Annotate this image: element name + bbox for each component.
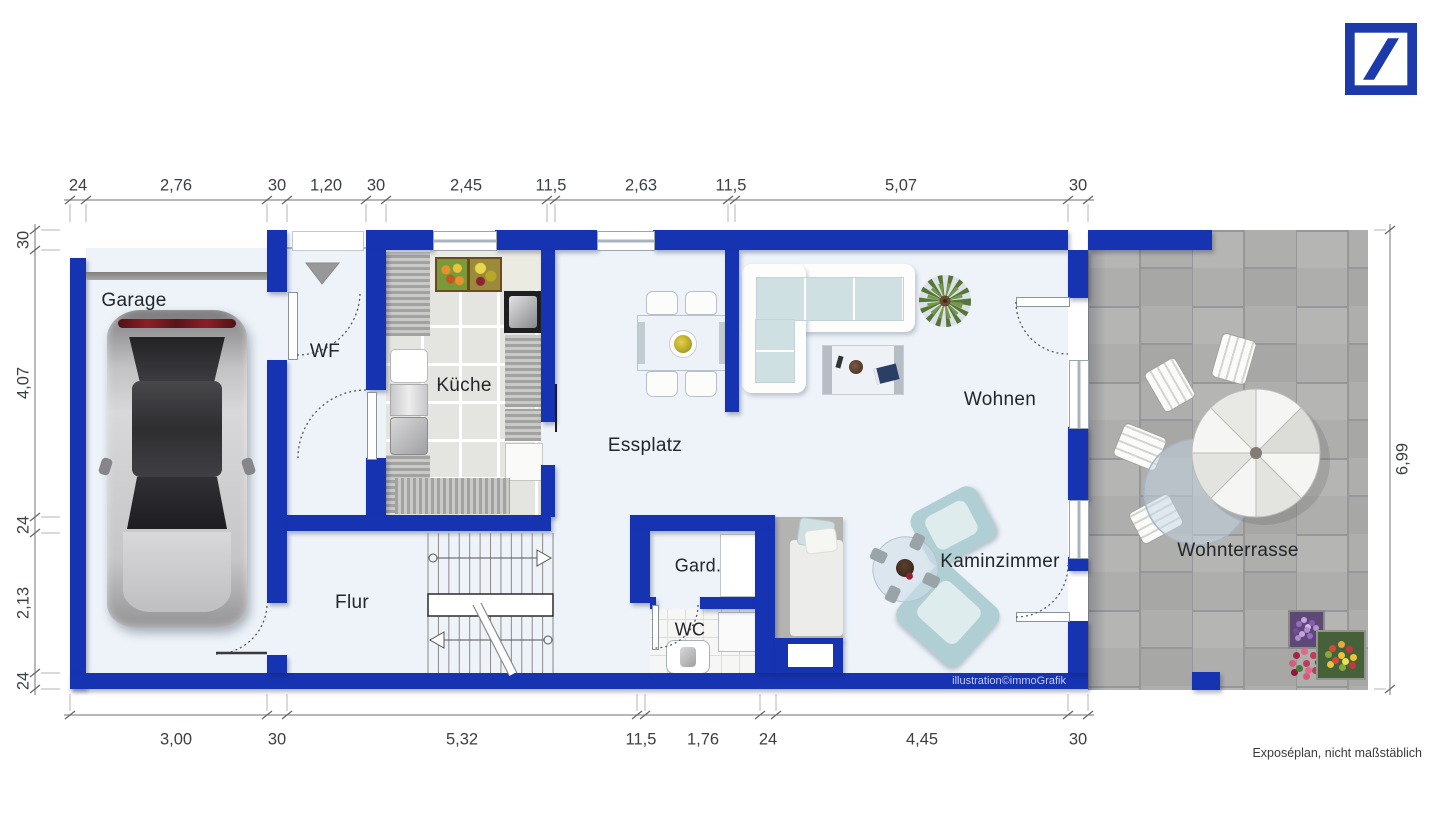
illustration-credit: illustration©immoGrafik <box>866 675 1066 687</box>
dim-bottom: 3,00 <box>160 731 192 750</box>
fruit-crate-1 <box>435 257 469 292</box>
dim-top: 5,07 <box>885 177 917 196</box>
kitchen-cutting-board <box>390 349 428 383</box>
wall-top-terrace <box>1088 230 1212 250</box>
dining-chair <box>646 291 678 315</box>
dim-bottom: 11,5 <box>626 731 657 750</box>
dim-top: 30 <box>268 177 286 196</box>
table-rail-left <box>638 322 645 364</box>
dim-top: 1,20 <box>310 177 342 196</box>
wall-right-seg3 <box>1068 557 1088 571</box>
bowl <box>849 360 863 374</box>
flower-dots <box>1304 627 1310 633</box>
dining-table <box>637 315 727 371</box>
dim-top: 2,45 <box>450 177 482 196</box>
room-label-kueche: Küche <box>436 375 491 397</box>
flower-planter-mixed <box>1316 630 1366 680</box>
dim-bottom: 5,32 <box>446 731 478 750</box>
kitchen-dishwasher <box>390 384 428 416</box>
wall-right-seg4 <box>1068 621 1088 673</box>
wall-wf-kueche-seg1 <box>366 250 386 390</box>
dining-chair <box>685 371 717 397</box>
kitchen-counter-left-top <box>386 252 430 336</box>
plan-disclaimer: Exposéplan, nicht maßstäblich <box>1160 746 1422 760</box>
window-wohnen <box>1069 360 1089 429</box>
dim-bottom: 1,76 <box>687 731 719 750</box>
doorframe-marker <box>555 384 557 432</box>
door-leaf-kamin-terrace <box>1016 612 1070 622</box>
car-windshield <box>127 477 227 529</box>
dim-bottom: 30 <box>268 731 286 750</box>
deutsche-bank-logo-icon <box>1345 23 1417 95</box>
room-label-essplatz: Essplatz <box>608 435 682 457</box>
floorplan-canvas: Garage WF Küche Essplatz Wohnen Kaminzim… <box>0 0 1440 815</box>
car-roof <box>132 381 222 477</box>
wall-top-kueche-left <box>366 230 433 250</box>
dim-left: 2,13 <box>15 587 34 619</box>
wall-wc-right <box>755 531 775 673</box>
sofa-cushions-top <box>756 277 904 321</box>
car-hood <box>123 532 231 612</box>
dim-left: 4,07 <box>15 367 34 399</box>
kitchen-stove <box>504 291 542 333</box>
daybed-mattress <box>790 540 843 636</box>
window-kueche <box>433 231 497 251</box>
wall-left-outer <box>70 258 86 689</box>
room-label-garage: Garage <box>101 290 166 312</box>
dim-bottom: 4,45 <box>906 731 938 750</box>
kitchen-cabinet-white <box>505 443 543 481</box>
kitchen-counter-right-mid <box>505 335 541 407</box>
wall-gard-wc <box>700 597 755 609</box>
wall-right-seg1 <box>1068 250 1088 298</box>
dim-bottom: 24 <box>759 731 777 750</box>
window-essplatz <box>597 231 655 251</box>
wall-right-seg2 <box>1068 427 1088 500</box>
kitchen-counter-right-low <box>505 409 541 441</box>
room-label-flur: Flur <box>335 592 369 614</box>
wall-stairs-north <box>287 515 551 531</box>
dim-left: 24 <box>15 516 34 534</box>
dim-top: 11,5 <box>536 177 567 196</box>
door-leaf-wf <box>367 392 377 460</box>
dim-right: 6,99 <box>1394 443 1413 475</box>
dim-left: 24 <box>15 672 34 690</box>
door-leaf-garage-wf <box>288 292 298 360</box>
dim-top: 11,5 <box>716 177 747 196</box>
room-label-wc: WC <box>675 620 706 641</box>
stove-cooktop <box>509 296 537 328</box>
wall-gard-left <box>630 531 650 603</box>
door-leaf-wc <box>652 605 659 650</box>
room-label-gard: Gard. <box>675 556 722 577</box>
toilet <box>666 640 710 674</box>
wardrobe <box>720 534 758 597</box>
coffee-table <box>822 345 904 395</box>
dim-top: 2,76 <box>160 177 192 196</box>
wall-terrace-stub <box>1192 672 1220 690</box>
dining-chair <box>685 291 717 315</box>
wall-wf-kueche-seg2 <box>366 458 386 517</box>
terrace-wall-shadow <box>1088 230 1106 690</box>
room-label-kaminzimmer: Kaminzimmer <box>940 551 1059 573</box>
pillow-white <box>804 527 839 555</box>
dim-top: 24 <box>69 177 87 196</box>
garage-door <box>86 272 267 280</box>
kitchen-sink <box>390 417 428 455</box>
sofa-cushions-left <box>755 319 795 383</box>
kitchen-counter-bottom <box>395 478 510 514</box>
room-label-wf: WF <box>310 341 340 363</box>
fruit-crate-2 <box>468 257 502 292</box>
fruit-bowl <box>674 335 692 353</box>
dim-top: 30 <box>367 177 385 196</box>
wall-kueche-right-seg2 <box>541 465 555 517</box>
wall-kueche-right-seg1 <box>541 250 555 422</box>
dim-top: 2,63 <box>625 177 657 196</box>
entry-door-opening <box>292 231 364 251</box>
fruit-plate <box>669 330 697 358</box>
dim-bottom: 30 <box>1069 731 1087 750</box>
wall-garage-seg2 <box>267 360 287 603</box>
dim-top: 30 <box>1069 177 1087 196</box>
wall-top-right <box>653 230 1068 250</box>
dining-chair <box>646 371 678 397</box>
wall-top-mid <box>495 230 597 250</box>
dim-left: 30 <box>15 231 34 249</box>
wall-garage-seg1 <box>267 230 287 292</box>
wall-gard-top <box>630 515 775 531</box>
daybed <box>775 517 843 641</box>
flower-dots <box>1303 660 1310 667</box>
window-kaminzimmer <box>1069 500 1089 559</box>
car-taillight-strip <box>118 319 236 328</box>
remote <box>835 356 843 369</box>
wc-sink <box>718 612 758 652</box>
coffee-table-cap-left <box>823 346 832 394</box>
car-top-view <box>107 310 247 628</box>
wall-essplatz-wohnen <box>725 250 739 412</box>
flower-dots <box>1338 652 1345 659</box>
room-label-wohnen: Wohnen <box>964 389 1036 411</box>
toilet-lid <box>680 647 696 667</box>
wall-garage-seg3 <box>267 655 287 673</box>
kamin-niche <box>788 644 833 667</box>
room-label-wohnterrasse: Wohnterrasse <box>1177 540 1299 562</box>
door-leaf-wohnen-terrace <box>1016 297 1070 307</box>
car-rear-window <box>125 337 229 381</box>
